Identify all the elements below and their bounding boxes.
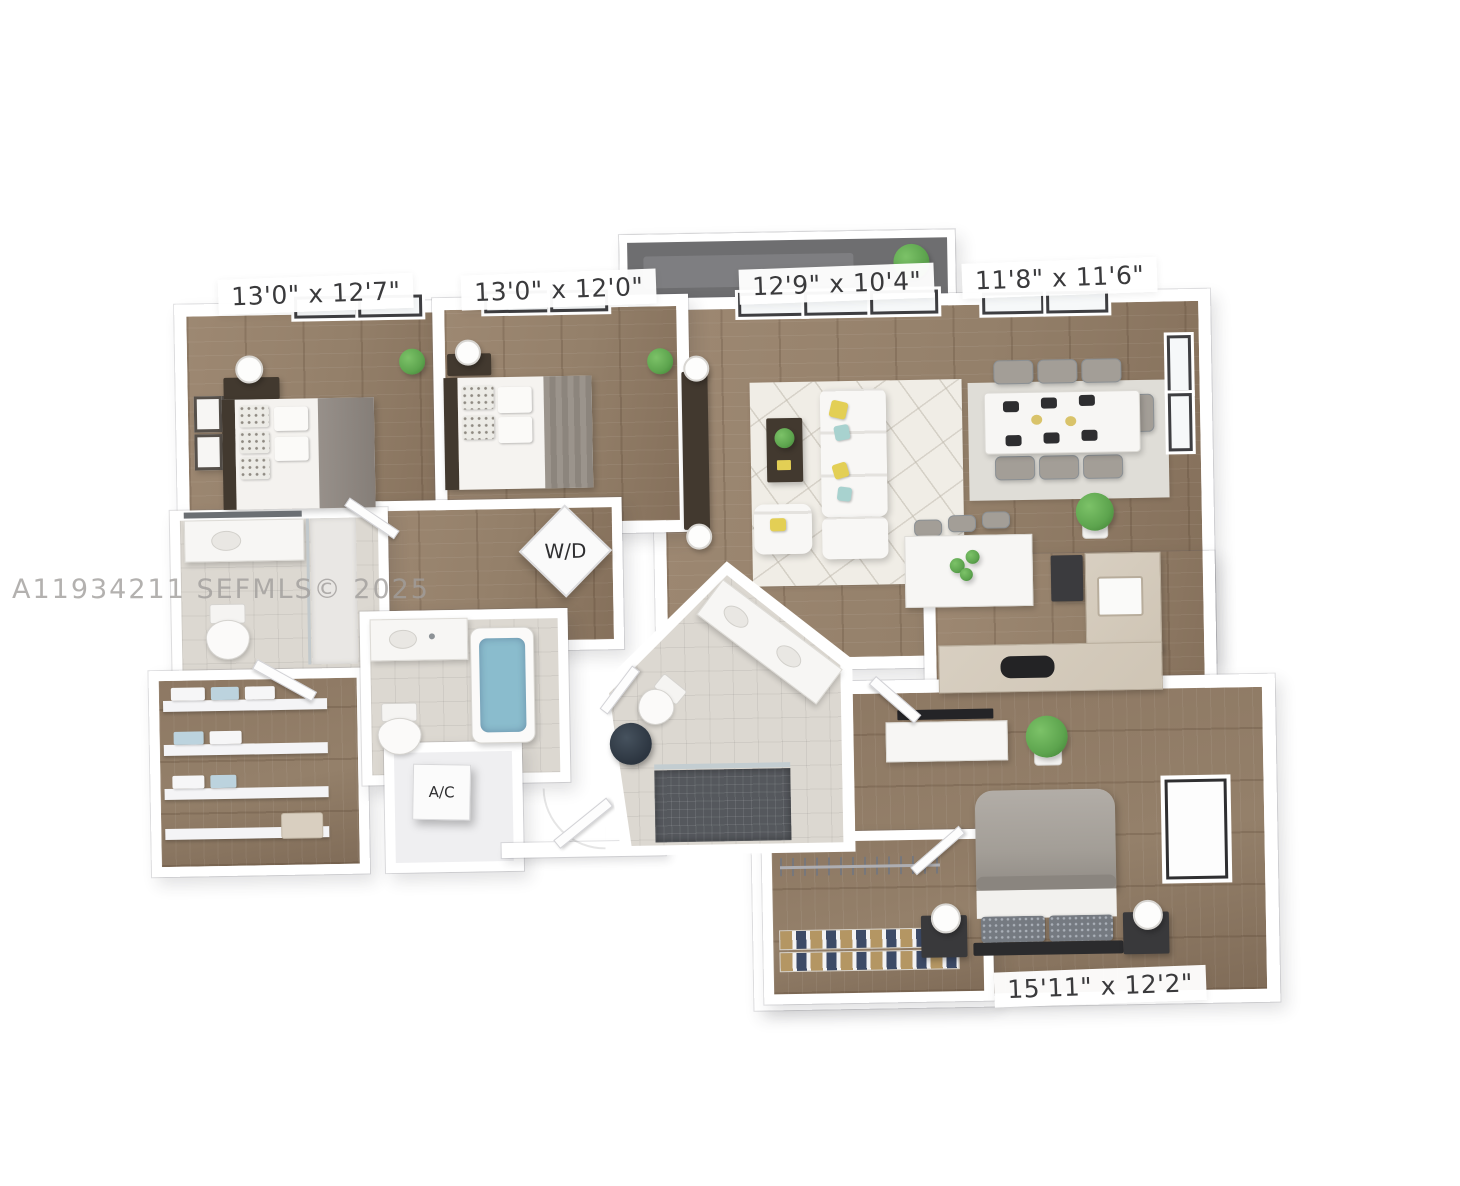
ac-unit: A/C (412, 764, 471, 821)
food-dish (1031, 415, 1042, 425)
bar-stool (948, 515, 976, 532)
dimension-text: 13'0" x 12'7" (231, 276, 401, 311)
bed (971, 788, 1124, 959)
pillow (770, 518, 786, 531)
toilet (377, 703, 420, 754)
faucet (429, 633, 435, 639)
bar-stool (982, 511, 1010, 528)
pillow (239, 431, 269, 454)
picture-frame (194, 396, 223, 432)
dimension-label-bedroom-2: 13'0" x 12'0" (461, 268, 658, 310)
window (1167, 335, 1192, 393)
pillow (274, 436, 308, 461)
primary-bathroom (587, 551, 864, 866)
pillow (833, 424, 851, 442)
vanity (370, 618, 469, 662)
dimension-text: 15'11" x 12'2" (1007, 968, 1194, 1004)
blanket (543, 376, 593, 489)
towel-stack (211, 687, 239, 700)
dimension-label-living-room: 12'9" x 10'4" (739, 263, 936, 305)
dimension-label-dining-room: 11'8" x 11'6" (961, 257, 1158, 299)
bar-stool (914, 519, 942, 536)
washer-dryer-label: W/D (544, 539, 586, 564)
cooktop (1000, 655, 1054, 678)
dimension-text: 11'8" x 11'6" (975, 260, 1145, 295)
dimension-label-bedroom-1: 13'0" x 12'7" (218, 273, 415, 315)
refrigerator (1051, 555, 1084, 602)
pillow (1049, 914, 1113, 941)
sink (211, 531, 241, 552)
ac-label: A/C (429, 783, 455, 801)
pillow (240, 457, 270, 480)
bed (222, 397, 376, 510)
dining-chair (1081, 358, 1121, 383)
walk-in-shower (654, 768, 791, 842)
produce (960, 568, 973, 581)
towel-stack (171, 687, 205, 701)
mls-watermark: A11934211 SEFMLS© 2025 (12, 574, 430, 605)
toilet (205, 604, 248, 659)
blanket (318, 397, 376, 508)
bathtub-water (479, 638, 527, 733)
dimension-text: 12'9" x 10'4" (752, 266, 922, 301)
dining-chair (993, 360, 1033, 385)
produce (965, 550, 979, 564)
pillow (837, 486, 853, 502)
towel-stack (210, 731, 242, 745)
pillow (239, 405, 269, 428)
book (777, 460, 791, 470)
bathtub (470, 627, 536, 744)
kitchen-sink (1097, 576, 1144, 617)
place-setting (1043, 432, 1059, 443)
towel-stack (174, 731, 204, 745)
dining-chair (1083, 454, 1123, 479)
towel-stack (245, 686, 275, 700)
place-setting (1081, 430, 1097, 441)
pillow (462, 415, 494, 440)
pillow (462, 385, 494, 410)
food-dish (1065, 416, 1076, 426)
sink (719, 601, 752, 632)
console-table (681, 371, 710, 529)
dining-chair (1039, 455, 1079, 480)
kitchen-island (904, 534, 1033, 608)
window (1168, 393, 1193, 451)
towel-stack (210, 775, 236, 788)
pillow (498, 417, 532, 444)
tv-console (885, 720, 1008, 762)
dining-table (984, 390, 1141, 455)
sink (389, 630, 417, 649)
dining-chair (995, 456, 1035, 481)
place-setting (1041, 397, 1057, 408)
storage-basket (281, 812, 323, 839)
towel-stack (172, 775, 204, 789)
bed (443, 376, 593, 491)
window (1165, 778, 1229, 879)
place-setting (1079, 395, 1095, 406)
pillow (274, 406, 308, 431)
vanity (184, 519, 305, 563)
pillow (981, 916, 1045, 943)
pillow (498, 387, 532, 414)
floor-plan-image: W/D A/C 13'0" x 12'7" 13'0" x 12'0" 12'9… (0, 0, 1460, 1186)
place-setting (1005, 435, 1021, 446)
dimension-text: 13'0" x 12'0" (474, 272, 644, 307)
place-setting (1003, 401, 1019, 412)
picture-frame (194, 434, 223, 470)
bed-platform (973, 940, 1123, 956)
dining-chair (1037, 359, 1077, 384)
sink (772, 641, 805, 672)
